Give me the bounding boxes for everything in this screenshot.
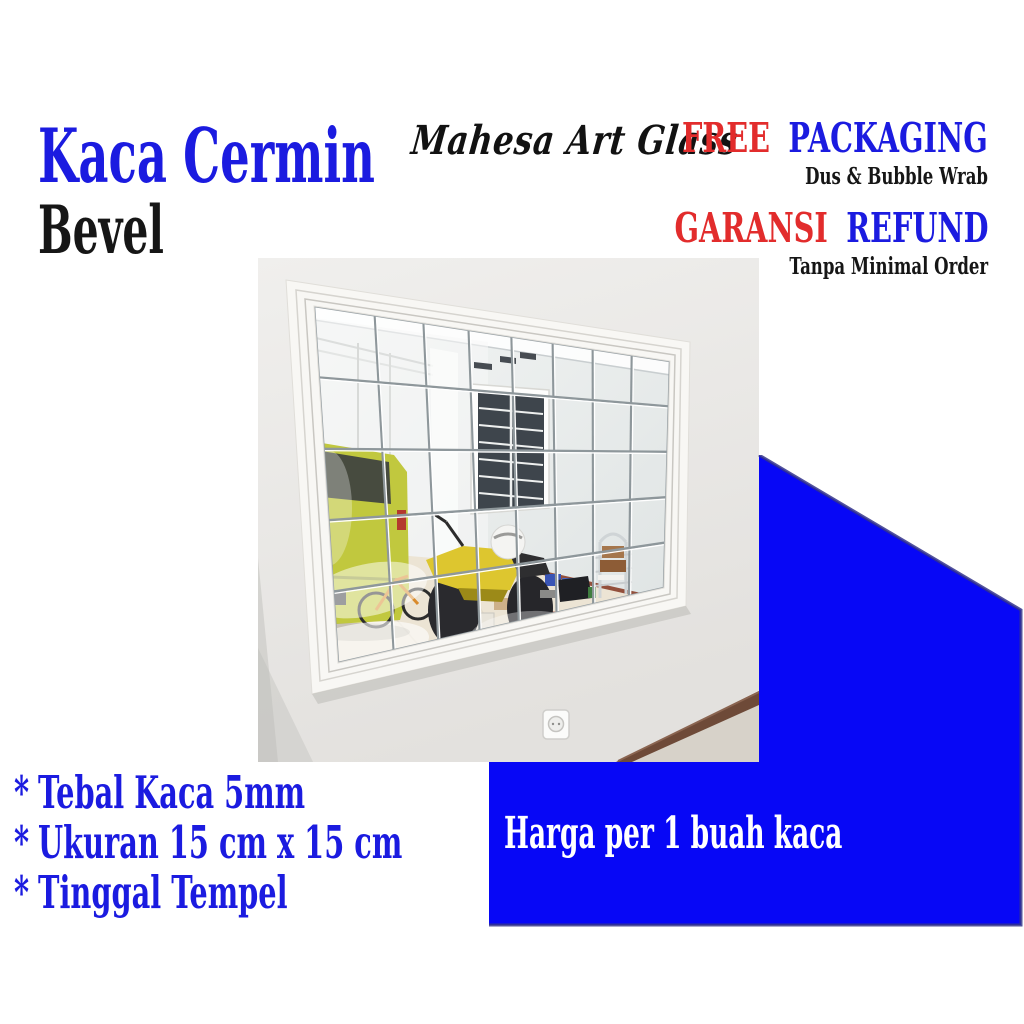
offers-block: FREE PACKAGING Dus & Bubble Wrab GARANSI…: [540, 114, 988, 280]
offer-garansi-label: GARANSI: [674, 204, 827, 252]
feature-size-text: Ukuran 15 cm x 15 cm: [38, 816, 402, 869]
offer-refund: GARANSI REFUND: [540, 204, 988, 252]
price-banner-text: Harga per 1 buah kaca: [504, 810, 842, 858]
product-subtitle-text: Bevel: [38, 195, 164, 266]
product-title-text: Kaca Cermin: [38, 116, 375, 197]
feature-thickness-text: Tebal Kaca 5mm: [38, 766, 305, 819]
bullet-star-icon: *: [14, 766, 29, 819]
price-banner: Harga per 1 buah kaca: [504, 808, 1024, 859]
offer-refund-sub-text: Tanpa Minimal Order: [789, 255, 988, 280]
feature-install: *Tinggal Tempel: [14, 868, 621, 918]
product-title-line2: Bevel: [38, 192, 241, 269]
product-banner: Kaca Cermin Bevel Mahesa Art Glass FREE …: [0, 0, 1024, 1024]
offer-packaging: FREE PACKAGING: [540, 114, 988, 162]
offer-packaging-sub-text: Dus & Bubble Wrab: [805, 165, 988, 190]
feature-install-text: Tinggal Tempel: [38, 866, 288, 919]
offer-packaging-label: PACKAGING: [789, 114, 988, 162]
offer-refund-label: REFUND: [846, 204, 988, 252]
offer-packaging-sub: Dus & Bubble Wrab: [540, 164, 988, 190]
bullet-star-icon: *: [14, 816, 29, 869]
offer-free-label: FREE: [682, 114, 770, 162]
bullet-star-icon: *: [14, 866, 29, 919]
